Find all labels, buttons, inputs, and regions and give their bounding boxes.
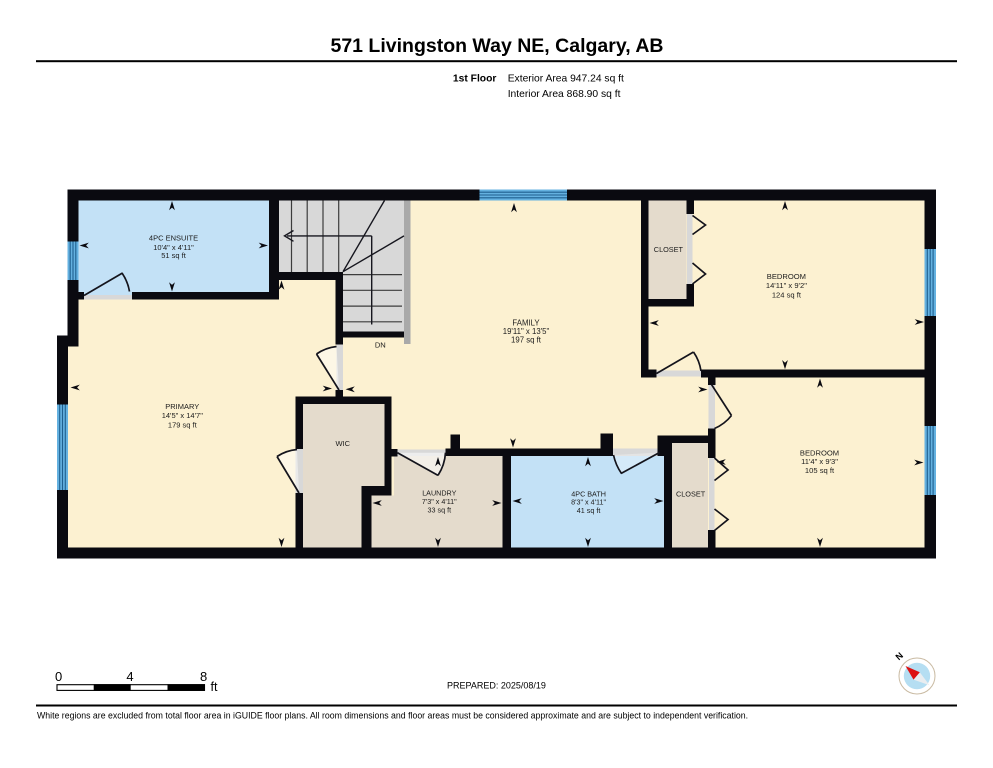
svg-text:PRIMARY: PRIMARY [165, 402, 199, 411]
svg-text:CLOSET: CLOSET [676, 490, 706, 499]
svg-text:4PC ENSUITE: 4PC ENSUITE [149, 234, 198, 243]
svg-text:124 sq ft: 124 sq ft [772, 290, 802, 299]
svg-text:179 sq ft: 179 sq ft [168, 420, 198, 429]
svg-text:PREPARED: 2025/08/19: PREPARED: 2025/08/19 [447, 681, 546, 691]
svg-text:11'4" x 9'3": 11'4" x 9'3" [801, 457, 838, 466]
svg-text:WIC: WIC [336, 439, 351, 448]
svg-text:51 sq ft: 51 sq ft [161, 251, 187, 260]
svg-text:41 sq ft: 41 sq ft [577, 506, 601, 515]
svg-text:105 sq ft: 105 sq ft [805, 466, 835, 475]
svg-text:14'5" x 14'7": 14'5" x 14'7" [162, 411, 203, 420]
svg-text:1st Floor: 1st Floor [453, 73, 496, 84]
svg-text:Interior Area 868.90 sq ft: Interior Area 868.90 sq ft [508, 89, 621, 100]
svg-text:White regions are excluded fro: White regions are excluded from total fl… [37, 711, 748, 721]
svg-text:Exterior Area 947.24 sq ft: Exterior Area 947.24 sq ft [508, 73, 624, 84]
svg-text:33 sq ft: 33 sq ft [428, 505, 452, 514]
svg-text:DN: DN [375, 340, 386, 349]
svg-text:8: 8 [200, 669, 207, 684]
svg-text:BEDROOM: BEDROOM [800, 449, 839, 458]
svg-text:N: N [893, 650, 905, 662]
svg-text:BEDROOM: BEDROOM [767, 272, 806, 281]
svg-text:CLOSET: CLOSET [654, 245, 684, 254]
svg-text:ft: ft [211, 680, 218, 694]
svg-text:4: 4 [126, 669, 133, 684]
svg-text:0: 0 [55, 669, 62, 684]
svg-text:14'11" x 9'2": 14'11" x 9'2" [766, 281, 807, 290]
svg-text:197 sq ft: 197 sq ft [511, 335, 542, 344]
svg-text:571 Livingston Way NE, Calgary: 571 Livingston Way NE, Calgary, AB [330, 35, 663, 57]
